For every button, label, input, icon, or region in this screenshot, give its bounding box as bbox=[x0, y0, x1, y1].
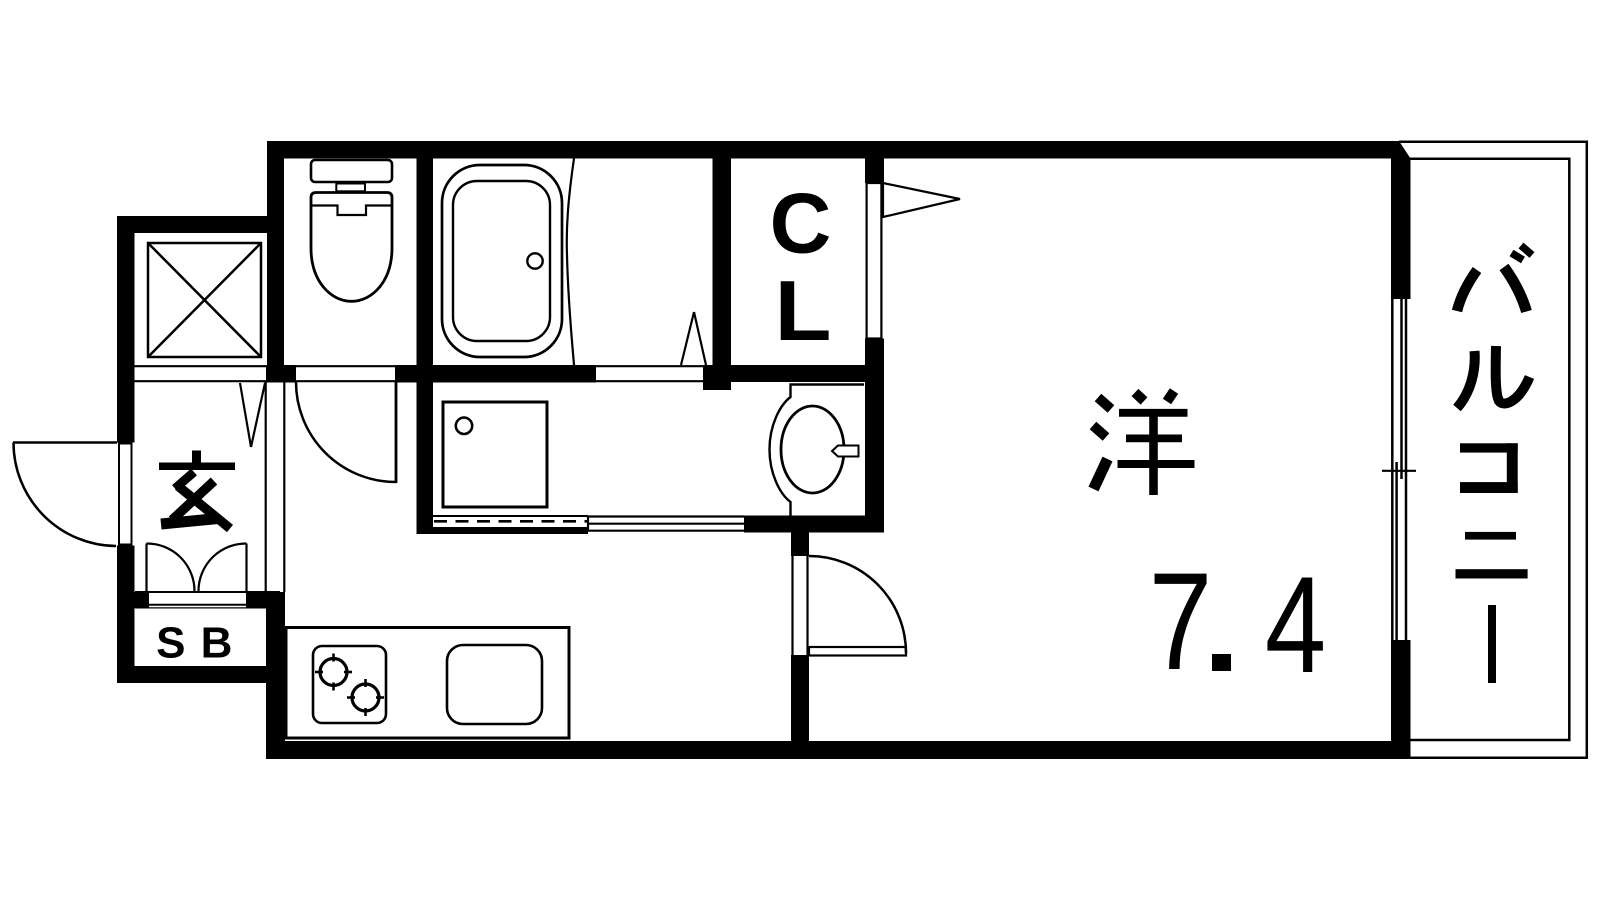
svg-text:7: 7 bbox=[1149, 544, 1213, 699]
svg-text:C: C bbox=[770, 177, 832, 272]
svg-text:4: 4 bbox=[1265, 548, 1326, 701]
svg-text:B: B bbox=[201, 619, 233, 668]
svg-text:L: L bbox=[775, 264, 832, 359]
svg-text:S: S bbox=[156, 619, 185, 668]
